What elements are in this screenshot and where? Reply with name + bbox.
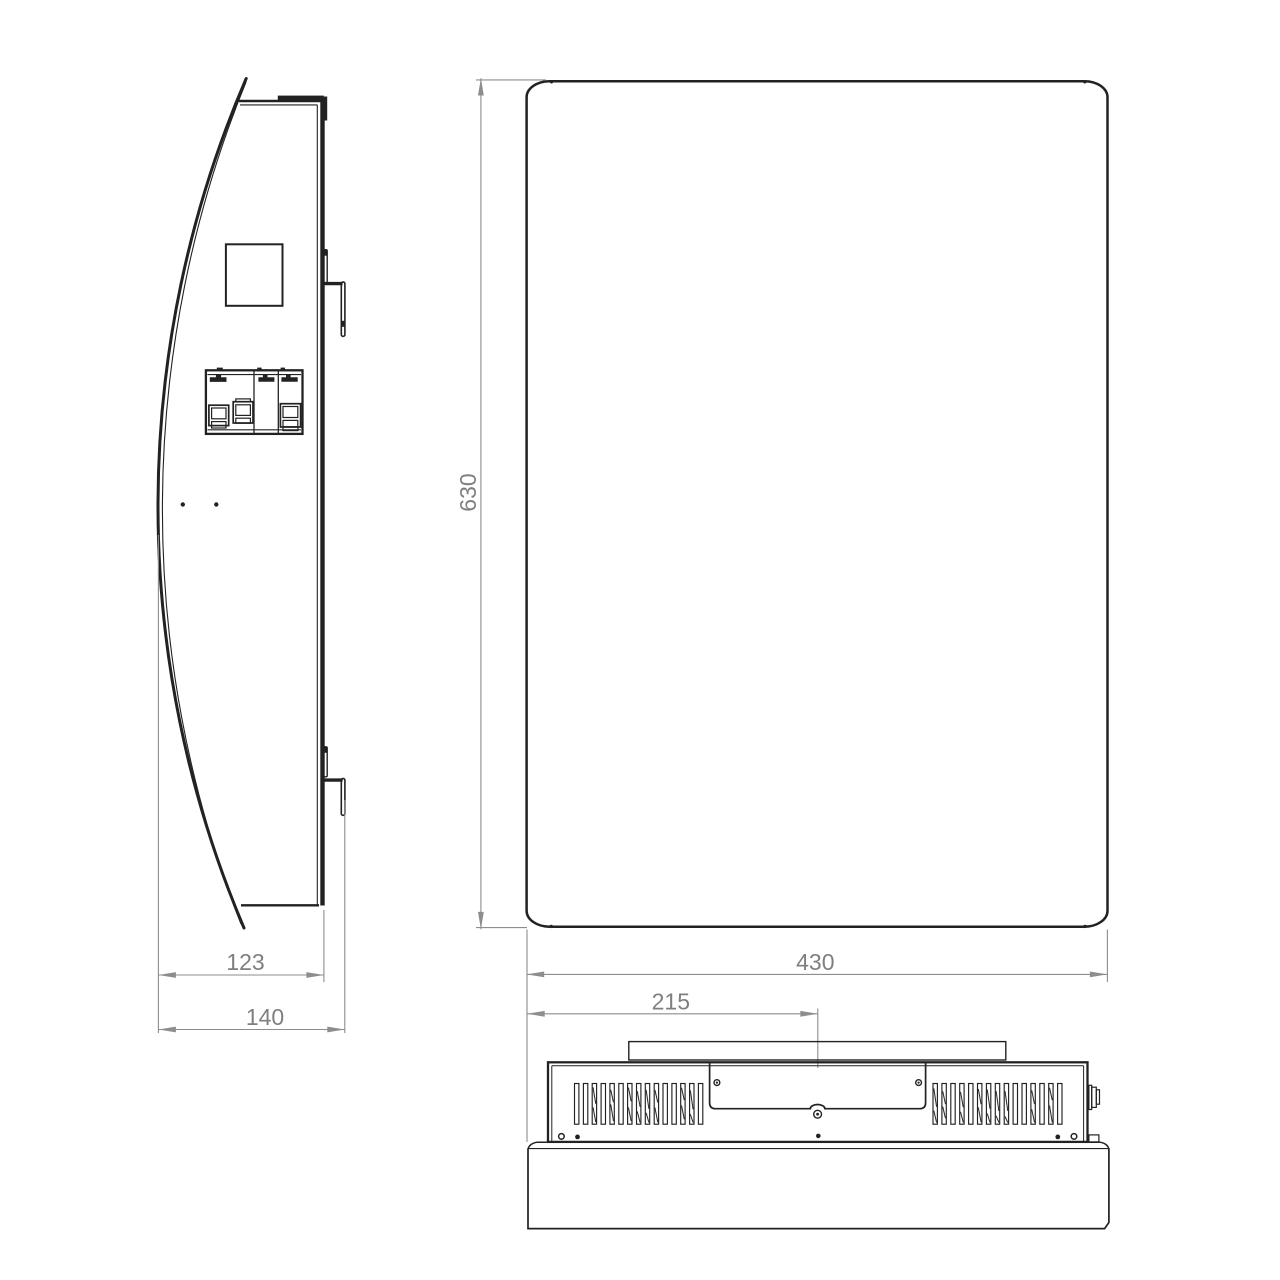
svg-text:630: 630 bbox=[455, 473, 481, 511]
svg-text:123: 123 bbox=[226, 949, 264, 975]
svg-text:430: 430 bbox=[796, 949, 834, 975]
svg-text:140: 140 bbox=[246, 1004, 284, 1030]
svg-text:215: 215 bbox=[652, 988, 690, 1014]
